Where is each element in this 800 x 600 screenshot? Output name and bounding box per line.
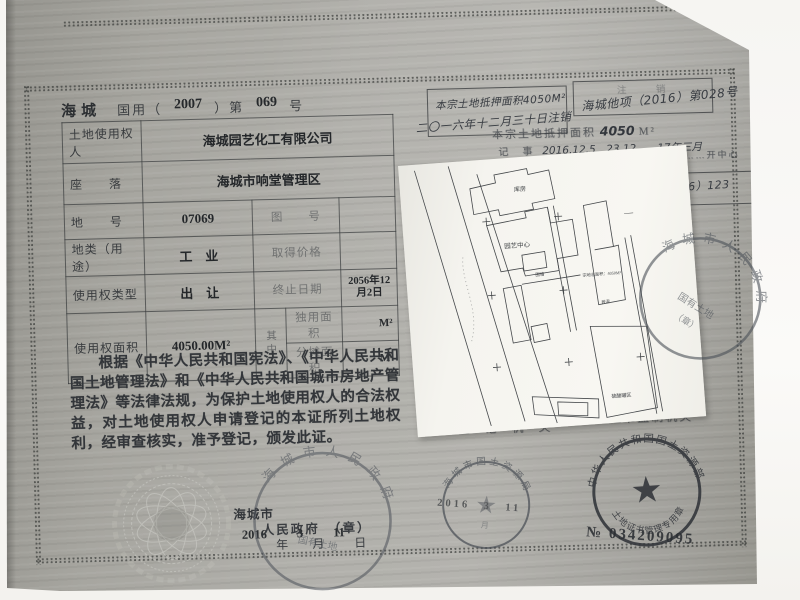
field-price-value (340, 231, 397, 269)
mortgage-area-label: 本宗土地抵押面积 (492, 127, 596, 142)
field-owner-label: 土地使用权人 (62, 121, 142, 164)
mortgage-area-unit: M² (638, 125, 655, 137)
serial-suffix: 号 (289, 98, 304, 113)
field-tenure-type-label: 使用权类型 (66, 275, 146, 314)
field-parcel-no-label: 地 号 (64, 203, 144, 240)
map-label-tank-area: 硫酸罐区 (611, 392, 631, 400)
field-expiry-value: 2056年12月2日 (341, 268, 398, 306)
stamp-inner-text: 国有土地 (297, 533, 339, 554)
land-resources-bureau-stamp: 海城市国土资源局 ★ 2016 3 11 月 (432, 452, 539, 564)
field-land-use-value: 工 业 (144, 235, 253, 275)
field-owner-value: 海城园艺化工有限公司 (141, 114, 394, 161)
map-label-garden-center: 园艺中心 (504, 240, 531, 251)
svg-text:海城市国土资源局: 海城市国土资源局 (440, 452, 535, 496)
map-label-wall: 围墙 (535, 271, 545, 279)
field-sheet-no-value (339, 196, 395, 232)
field-exclusive-area-label: 独用面积 (285, 307, 343, 343)
legal-decree-paragraph: 根据《中华人民共和国宪法》、《中华人民共和国土地管理法》和《中华人民共和国城市房… (69, 346, 401, 454)
star-icon: ★ (629, 469, 664, 511)
map-dash-mark: — (623, 207, 635, 218)
grid-cross-marks (482, 207, 645, 372)
serial-number: 069 (256, 95, 277, 111)
field-tenure-type-value: 出 让 (145, 272, 254, 312)
field-price-label: 取得价格 (252, 233, 341, 272)
map-label-structure: 砖混 (601, 298, 611, 306)
field-location-value: 海城市响堂管理区 (142, 155, 395, 202)
serial-mid: ）第 (214, 100, 244, 116)
stamp-arc-text: 海城市国土资源局 (440, 452, 535, 496)
map-label-parcel-area: 宗地总面积：4050M² (582, 269, 622, 279)
field-exclusive-area-unit: M² (342, 305, 398, 341)
city-government-stamp-bottom: 海城市人民政府 国有土地 (233, 432, 412, 600)
partial-text: ……开中心 (684, 147, 739, 161)
field-parcel-no-value: 07069 (143, 200, 252, 238)
region-name: 海城 (61, 103, 101, 120)
serial-year: 2007 (174, 97, 202, 113)
stamp-month-label: 月 (480, 521, 489, 531)
serial-prefix: 国用（ (117, 102, 162, 118)
field-sheet-no-label: 图 号 (252, 198, 341, 235)
field-location-label: 座 落 (63, 162, 143, 205)
land-register-table: 土地使用权人 海城园艺化工有限公司 座 落 海城市响堂管理区 地 号 07069… (61, 114, 400, 384)
field-land-use-label: 地类（用途） (65, 238, 145, 277)
field-expiry-label: 终止日期 (253, 270, 342, 309)
certificate-photo: 海城国用（2007）第069号 土地使用权人 海城园艺化工有限公司 座 落 海城… (0, 0, 800, 600)
map-label-storehouse: 库房 (514, 185, 527, 194)
mortgage-area-value: 4050 (600, 123, 635, 139)
